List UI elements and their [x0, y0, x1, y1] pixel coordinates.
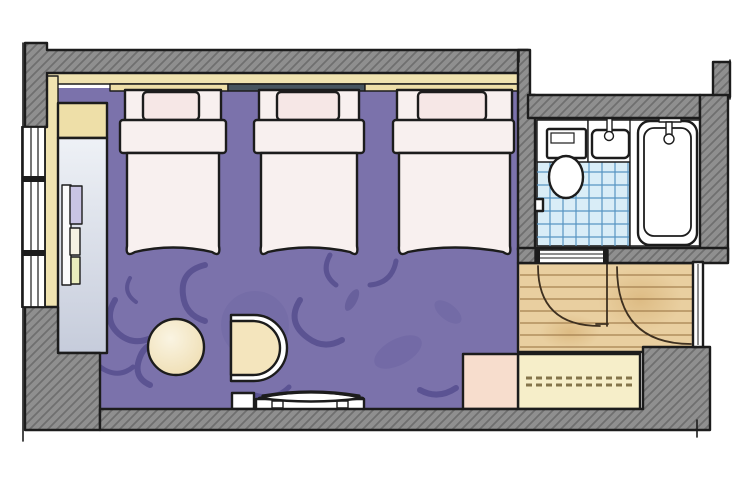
- bolster: [254, 120, 364, 153]
- pillow: [418, 92, 486, 120]
- tub-faucet: [666, 122, 672, 135]
- toilet: [547, 129, 586, 198]
- pillow: [277, 92, 339, 120]
- luggage-bench: [518, 354, 640, 409]
- window: [22, 127, 45, 307]
- bed-body: [399, 153, 510, 254]
- pillow: [143, 92, 199, 120]
- tv-cabinet: [232, 392, 364, 410]
- floor-plan-drawing: [0, 0, 750, 500]
- bolster: [120, 120, 226, 153]
- side-box: [232, 393, 254, 409]
- desk-item-remote: [71, 257, 80, 284]
- round-table: [148, 319, 204, 375]
- lounge-chair: [231, 315, 287, 381]
- bathroom: [531, 113, 700, 248]
- chair-seat: [231, 321, 280, 375]
- wall-divider-bathroom: [518, 50, 535, 250]
- wall-right: [700, 95, 728, 260]
- bed-body: [127, 153, 220, 254]
- bolster: [393, 120, 514, 153]
- entrance-door: [693, 262, 703, 347]
- window-mullion: [22, 176, 45, 182]
- toilet-bowl: [549, 156, 583, 198]
- wall-pillar-top-right: [713, 62, 730, 97]
- bed-body: [261, 153, 358, 254]
- wall-bathroom-top: [528, 95, 700, 118]
- desk-item-folder: [70, 186, 82, 224]
- bed-1: [120, 90, 226, 254]
- bed-2: [254, 90, 364, 254]
- bathtub: [638, 113, 697, 245]
- bed-3: [393, 90, 514, 254]
- luggage-shelf: [58, 103, 107, 138]
- entry-hall: [518, 263, 697, 352]
- bathroom-door-threshold: [535, 249, 608, 263]
- desk-item-pad: [70, 228, 80, 255]
- floor-plan: [0, 0, 750, 500]
- headboard-band: [45, 73, 520, 91]
- window-mullion: [22, 250, 45, 256]
- stool: [463, 354, 518, 409]
